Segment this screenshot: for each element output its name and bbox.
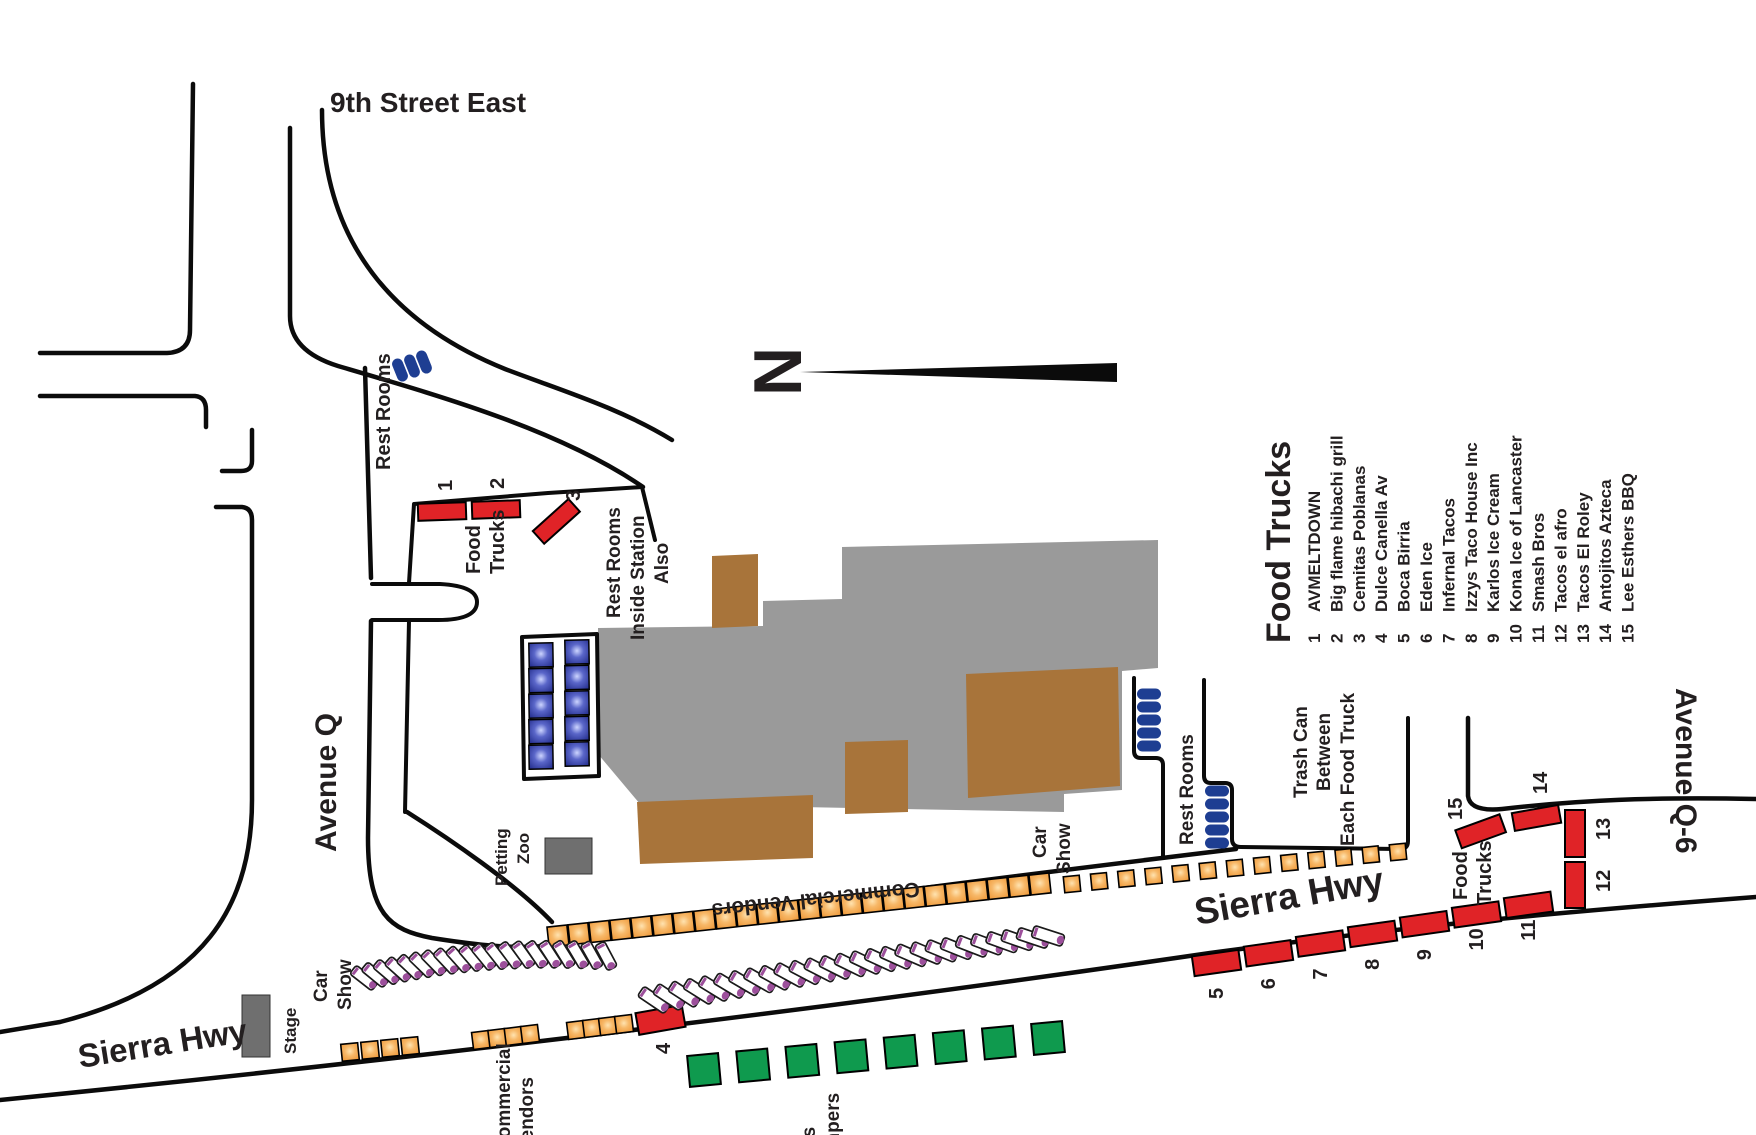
trash-can [1118, 870, 1135, 887]
rest-rooms-top-label: Rest Rooms [373, 353, 395, 470]
bounce-house [736, 1049, 770, 1083]
canopy-tent [529, 694, 553, 718]
vendor-booth [341, 1043, 360, 1062]
legend-item-label: Infernal Tacos [1439, 498, 1458, 612]
truck-number-14: 14 [1530, 771, 1552, 794]
trash-can-label-2: Between [1314, 713, 1335, 791]
commercial-vendors-cut-label-2: Vendors [517, 1077, 538, 1135]
legend-item-label: Big flame hibachi grill [1327, 435, 1346, 612]
vendor-booth [924, 884, 946, 906]
canopy-tent [565, 716, 589, 740]
north-arrow-icon [800, 363, 1117, 382]
kids-jumpers-cut-label-2: Jumpers [823, 1093, 844, 1135]
bounce-house [1031, 1021, 1065, 1055]
legend-item-number: 10 [1507, 624, 1526, 643]
vendor-booth [610, 918, 632, 940]
trash-can [1063, 875, 1080, 892]
vendor-booth [1008, 875, 1030, 897]
vendor-booth [987, 878, 1009, 900]
entrance-driveway [372, 584, 477, 620]
vendor-booth [401, 1037, 420, 1056]
vendor-booth [589, 920, 611, 942]
petting-zoo-label-1: Petting [492, 828, 511, 886]
portable-toilet [1137, 689, 1161, 700]
bounce-house [884, 1035, 918, 1069]
truck-number-6: 6 [1258, 978, 1280, 989]
trash-can-label-3: Each Food Truck [1338, 692, 1359, 846]
legend-item-label: Izzys Taco House Inc [1462, 442, 1481, 612]
rest-rooms-station-label-2: Inside Station [628, 515, 649, 640]
ninth-street-west-edge [40, 84, 193, 353]
legend-item-number: 2 [1327, 634, 1346, 643]
platform-east [966, 667, 1120, 798]
street-label-9th: 9th Street East [330, 87, 526, 118]
portable-toilet [1137, 702, 1161, 713]
food-truck-9 [1400, 911, 1449, 937]
food-trucks-left-label-2: Trucks [487, 510, 509, 574]
food-trucks-right-label-2: Trucks [1474, 841, 1496, 905]
truck-number-8: 8 [1362, 959, 1384, 970]
trash-can [1172, 865, 1189, 882]
food-truck-6 [1244, 940, 1293, 966]
canopy-tent [565, 665, 589, 689]
legend-item-label: Boca Birria [1395, 521, 1414, 612]
food-truck-3 [533, 499, 580, 544]
platform-center [845, 740, 908, 814]
canopy-tent [529, 745, 553, 769]
north-label: N [740, 347, 816, 396]
legend-item-label: Kona Ice of Lancaster [1507, 435, 1526, 612]
legend-title: Food Trucks [1260, 441, 1298, 643]
vendor-booth [966, 880, 988, 902]
vendor-booth [615, 1015, 634, 1034]
avenue-q-west-edge [0, 507, 252, 1032]
vendor-booth [1029, 873, 1051, 895]
legend-item-label: Tacos El Roley [1574, 492, 1593, 612]
legend-item-number: 15 [1619, 624, 1638, 643]
legend-item-number: 5 [1395, 634, 1414, 643]
truck-number-9: 9 [1414, 949, 1436, 960]
petting-zoo-box [545, 838, 592, 874]
side-street-edge [40, 396, 206, 427]
trash-can-label-1: Trash Can [1291, 706, 1312, 798]
legend-item-number: 13 [1574, 624, 1593, 643]
canopy-tent [565, 691, 589, 715]
canopy-tent [529, 719, 553, 743]
legend-item-number: 1 [1305, 634, 1324, 643]
legend-item-number: 7 [1439, 634, 1458, 643]
portable-toilet [1137, 715, 1161, 726]
truck-number-10: 10 [1466, 928, 1488, 950]
avenue-q6-edge [1468, 718, 1756, 809]
trash-can [1199, 862, 1216, 879]
portable-toilet [1205, 799, 1229, 810]
rest-rooms-right-label: Rest Rooms [1177, 734, 1198, 845]
legend-item-number: 9 [1484, 634, 1503, 643]
vendor-booth [631, 916, 653, 938]
car-show-west-label-1: Car [311, 970, 332, 1002]
truck-number-5: 5 [1206, 988, 1228, 999]
vendor-booth [673, 911, 695, 933]
portable-toilet [1205, 786, 1229, 797]
truck-number-7: 7 [1310, 968, 1332, 979]
bounce-house [687, 1053, 721, 1087]
legend-item-label: Cemitas Poblanas [1350, 466, 1369, 612]
food-truck-13 [1565, 810, 1585, 857]
car-show-east-label-2: Show [1054, 823, 1075, 874]
street-label-avenue-q: Avenue Q [310, 713, 343, 852]
car-show-west-label-2: Show [335, 959, 356, 1010]
truck-number-3: 3 [563, 490, 585, 501]
trash-can [1253, 857, 1270, 874]
avenue-q-east-edge-upper [365, 368, 371, 578]
bounce-house [982, 1026, 1016, 1060]
food-truck-7 [1296, 930, 1345, 956]
ninth-street-curve-outer [290, 128, 643, 487]
rest-rooms-station-label-1: Rest Rooms [604, 507, 625, 618]
legend-item-number: 6 [1417, 634, 1436, 643]
trash-can [1308, 851, 1325, 868]
food-trucks-right-label-1: Food [1450, 851, 1472, 900]
street-label-avenue-q6: Avenue Q-6 [1669, 688, 1702, 854]
legend-item-label: AVMELTDOWN [1305, 491, 1324, 612]
legend-item-label: Antojitos Azteca [1596, 479, 1615, 612]
legend-item-number: 3 [1350, 634, 1369, 643]
stage-label: Stage [281, 1008, 300, 1054]
truck-number-11: 11 [1518, 920, 1540, 941]
rest-rooms-station-label-3: Also [652, 543, 673, 584]
avenue-q-west-notch-upper [222, 430, 252, 471]
platform-south [637, 795, 813, 864]
truck-number-2: 2 [487, 478, 509, 489]
bounce-house [785, 1044, 819, 1078]
legend-item-number: 4 [1372, 633, 1391, 643]
portable-toilet [1137, 728, 1161, 739]
legend-item-label: Dulce Canella Av [1372, 475, 1391, 612]
truck-number-1: 1 [435, 480, 457, 491]
truck-number-15: 15 [1445, 798, 1467, 820]
commercial-vendors-cut-label-1: Commercial [494, 1043, 515, 1135]
legend-item-label: Karlos Ice Cream [1484, 473, 1503, 612]
trash-can [1226, 859, 1243, 876]
legend-item-label: Eden Ice [1417, 542, 1436, 612]
trash-can [1335, 849, 1352, 866]
canopy-tent [565, 640, 589, 664]
portable-toilet [1137, 741, 1161, 752]
portable-toilet [1205, 812, 1229, 823]
truck-number-4: 4 [653, 1042, 675, 1054]
legend-item-number: 12 [1551, 624, 1570, 643]
vendor-booth [521, 1025, 540, 1044]
trash-can [1389, 843, 1406, 860]
trash-can [1090, 873, 1107, 890]
legend-item-label: Tacos el afro [1551, 508, 1570, 612]
street-label-sierra-hwy-west: Sierra Hwy [75, 1012, 250, 1075]
trash-can [1281, 854, 1298, 871]
legend-item-number: 8 [1462, 634, 1481, 643]
petting-zoo-label-2: Zoo [514, 833, 533, 864]
legend-item-label: Lee Esthers BBQ [1619, 473, 1638, 612]
legend-item-number: 11 [1529, 625, 1548, 643]
food-truck-8 [1348, 921, 1397, 947]
site-southwest-connector [407, 812, 552, 922]
food-truck-pen-west-wall [405, 621, 409, 812]
food-trucks-left-label-1: Food [463, 525, 485, 574]
truck-number-13: 13 [1593, 818, 1615, 840]
vendor-booth [381, 1039, 400, 1058]
event-map: N 567891011 1AVMELTDOWN2Big flame hibach… [0, 0, 1756, 1135]
car-show-east-label-1: Car [1030, 826, 1051, 858]
food-truck-12 [1565, 862, 1585, 908]
vendor-booth [945, 882, 967, 904]
bounce-house [933, 1030, 967, 1064]
food-truck-1 [418, 502, 467, 521]
vendor-booth [361, 1041, 380, 1060]
legend-item-number: 14 [1596, 624, 1615, 643]
canopy-tent [565, 742, 589, 766]
canopy-tent [529, 643, 553, 667]
platform-north [712, 554, 758, 628]
canopy-tent [529, 668, 553, 692]
north-arrow: N [740, 347, 1117, 396]
portable-toilet [1205, 825, 1229, 836]
kids-jumpers-cut-label-1: Kids [799, 1127, 820, 1135]
trash-can [1145, 867, 1162, 884]
vendor-booth [652, 914, 674, 936]
portable-toilet [1205, 838, 1229, 849]
bounce-house [835, 1039, 869, 1073]
legend-item-label: Smash Bros [1529, 513, 1548, 612]
train-station-building [598, 540, 1158, 864]
truck-number-12: 12 [1593, 870, 1615, 892]
